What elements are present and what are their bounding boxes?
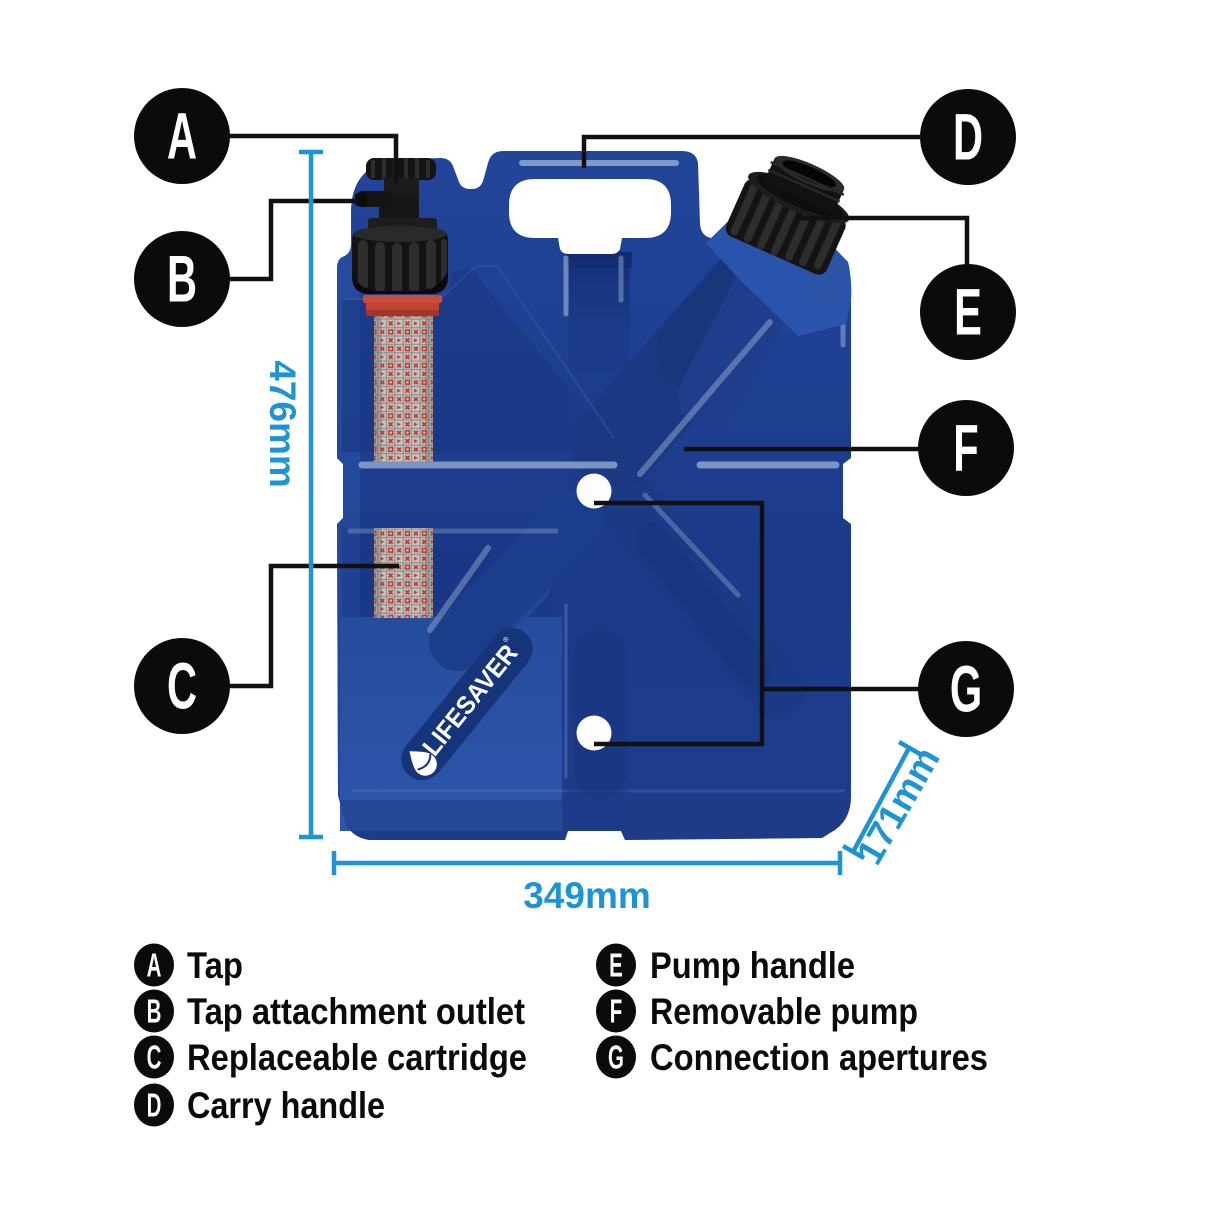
svg-text:E: E xyxy=(609,946,623,983)
svg-text:B: B xyxy=(167,242,197,316)
svg-text:F: F xyxy=(610,992,622,1029)
svg-text:A: A xyxy=(147,946,162,983)
svg-text:Carry handle: Carry handle xyxy=(187,1085,385,1126)
svg-text:349mm: 349mm xyxy=(523,875,651,916)
svg-text:D: D xyxy=(147,1086,162,1123)
svg-text:Tap attachment outlet: Tap attachment outlet xyxy=(187,991,525,1032)
svg-text:476mm: 476mm xyxy=(262,360,303,488)
svg-text:Pump handle: Pump handle xyxy=(650,945,855,986)
svg-text:A: A xyxy=(167,99,197,173)
svg-text:G: G xyxy=(950,652,982,726)
svg-text:C: C xyxy=(167,649,197,723)
svg-text:Removable pump: Removable pump xyxy=(650,991,918,1032)
svg-text:F: F xyxy=(953,411,978,485)
svg-text:D: D xyxy=(953,100,983,174)
svg-text:Tap: Tap xyxy=(187,945,243,986)
svg-text:Replaceable cartridge: Replaceable cartridge xyxy=(187,1037,527,1078)
svg-text:C: C xyxy=(147,1038,162,1075)
svg-text:Connection apertures: Connection apertures xyxy=(650,1037,988,1078)
svg-text:G: G xyxy=(608,1038,624,1075)
svg-text:B: B xyxy=(147,992,162,1029)
svg-text:E: E xyxy=(954,275,982,349)
